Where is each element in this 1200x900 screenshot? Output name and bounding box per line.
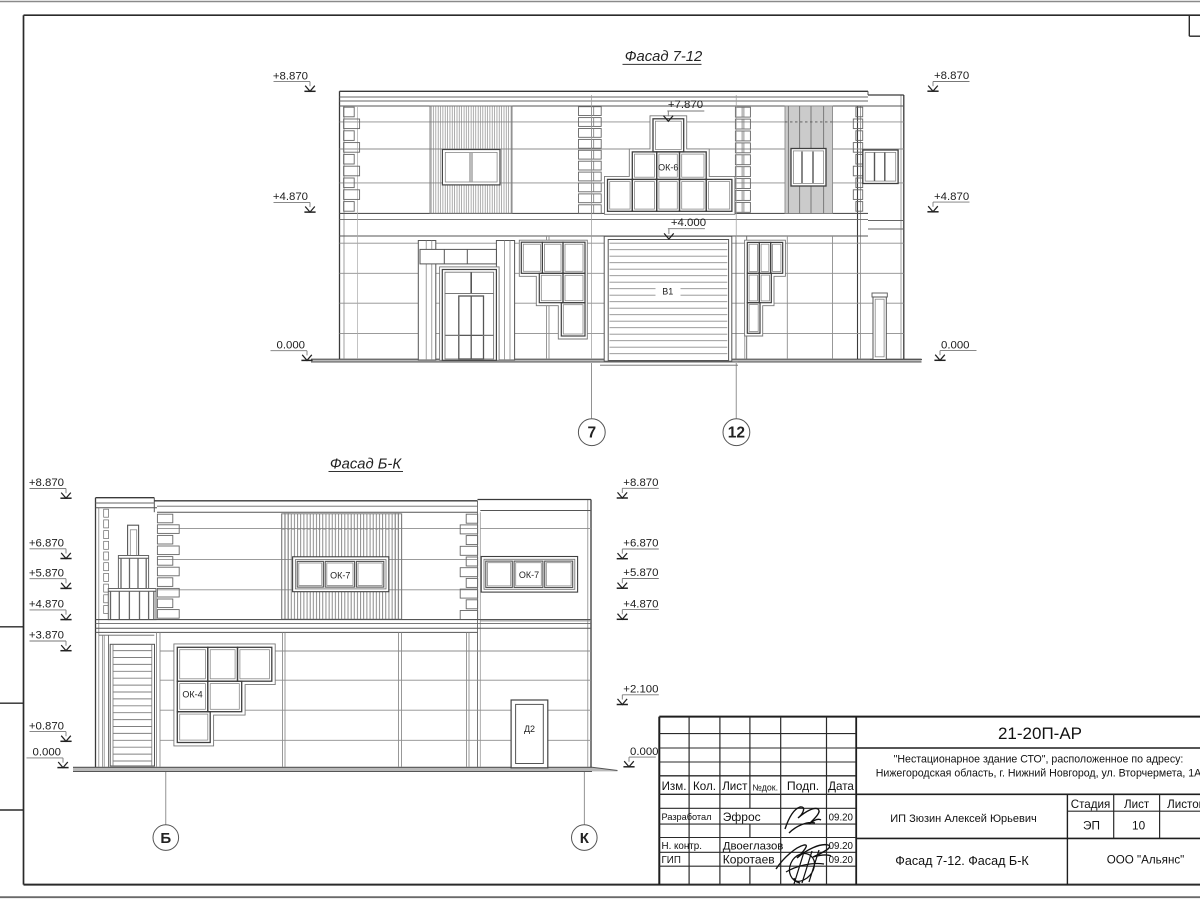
svg-text:+4.000: +4.000	[671, 217, 706, 229]
svg-text:Нижегородская область, г. Нижн: Нижегородская область, г. Нижний Новгоро…	[876, 767, 1200, 779]
svg-text:Фасад 7-12: Фасад 7-12	[625, 49, 703, 65]
svg-text:09.20: 09.20	[829, 841, 854, 852]
svg-text:Д2: Д2	[524, 724, 535, 734]
svg-text:Стадия: Стадия	[1071, 798, 1111, 811]
svg-text:В1: В1	[662, 287, 673, 297]
svg-text:ОК-7: ОК-7	[330, 570, 350, 580]
svg-text:09.20: 09.20	[829, 812, 854, 823]
svg-text:Двоеглазов: Двоеглазов	[723, 841, 784, 853]
svg-text:+5.870: +5.870	[29, 567, 64, 579]
svg-text:Листов: Листов	[1167, 798, 1200, 811]
svg-text:ОК-6: ОК-6	[658, 163, 678, 173]
svg-text:Изм.: Изм.	[662, 780, 687, 793]
svg-text:0.000: 0.000	[630, 746, 659, 758]
svg-text:ООО "Альянс": ООО "Альянс"	[1107, 854, 1185, 867]
svg-text:Разработал: Разработал	[662, 812, 712, 822]
svg-text:Эфрос: Эфрос	[723, 810, 761, 824]
svg-text:ЭП: ЭП	[1083, 818, 1100, 832]
svg-text:Фасад 7-12. Фасад Б-К: Фасад 7-12. Фасад Б-К	[895, 854, 1029, 868]
svg-text:ОК-4: ОК-4	[182, 689, 202, 699]
svg-text:+7.870: +7.870	[668, 99, 703, 111]
svg-text:+8.870: +8.870	[29, 477, 64, 489]
svg-text:Коротаев: Коротаев	[723, 853, 775, 867]
svg-text:+4.870: +4.870	[934, 191, 969, 203]
svg-text:+8.870: +8.870	[934, 70, 969, 82]
svg-text:Фасад Б-К: Фасад Б-К	[330, 456, 402, 472]
svg-text:+8.870: +8.870	[273, 70, 308, 82]
svg-text:21-20П-АР: 21-20П-АР	[998, 724, 1082, 743]
svg-text:Б: Б	[160, 830, 171, 847]
svg-text:+4.870: +4.870	[623, 598, 658, 610]
svg-text:Лист: Лист	[1124, 798, 1150, 811]
svg-text:"Нестационарное здание СТО", р: "Нестационарное здание СТО", расположенн…	[894, 754, 1184, 766]
svg-text:+6.870: +6.870	[29, 538, 64, 550]
svg-text:Дата: Дата	[828, 780, 854, 793]
svg-text:+4.870: +4.870	[29, 599, 64, 611]
svg-text:Лист: Лист	[722, 780, 748, 793]
svg-text:ИП Зюзин Алексей Юрьевич: ИП Зюзин Алексей Юрьевич	[890, 813, 1037, 825]
svg-text:ГИП: ГИП	[662, 855, 681, 866]
svg-text:Н. контр.: Н. контр.	[662, 841, 702, 852]
svg-text:0.000: 0.000	[276, 339, 305, 351]
svg-text:К: К	[580, 830, 590, 847]
svg-text:0.000: 0.000	[941, 339, 970, 351]
svg-text:0.000: 0.000	[32, 747, 61, 759]
svg-text:+4.870: +4.870	[273, 191, 308, 203]
svg-text:+2.100: +2.100	[623, 684, 658, 696]
svg-text:7: 7	[587, 425, 596, 442]
svg-text:+0.870: +0.870	[29, 720, 64, 732]
svg-text:+6.870: +6.870	[623, 538, 658, 550]
svg-text:Кол.: Кол.	[693, 780, 716, 793]
svg-text:10: 10	[1132, 819, 1146, 833]
svg-text:09.20: 09.20	[829, 855, 854, 866]
svg-text:ОК-7: ОК-7	[519, 570, 539, 580]
svg-text:+5.870: +5.870	[623, 567, 658, 579]
svg-text:№док.: №док.	[752, 783, 778, 793]
svg-text:Подп.: Подп.	[787, 779, 819, 793]
svg-text:+3.870: +3.870	[29, 630, 64, 642]
svg-text:+8.870: +8.870	[623, 477, 658, 489]
svg-text:12: 12	[728, 425, 745, 442]
